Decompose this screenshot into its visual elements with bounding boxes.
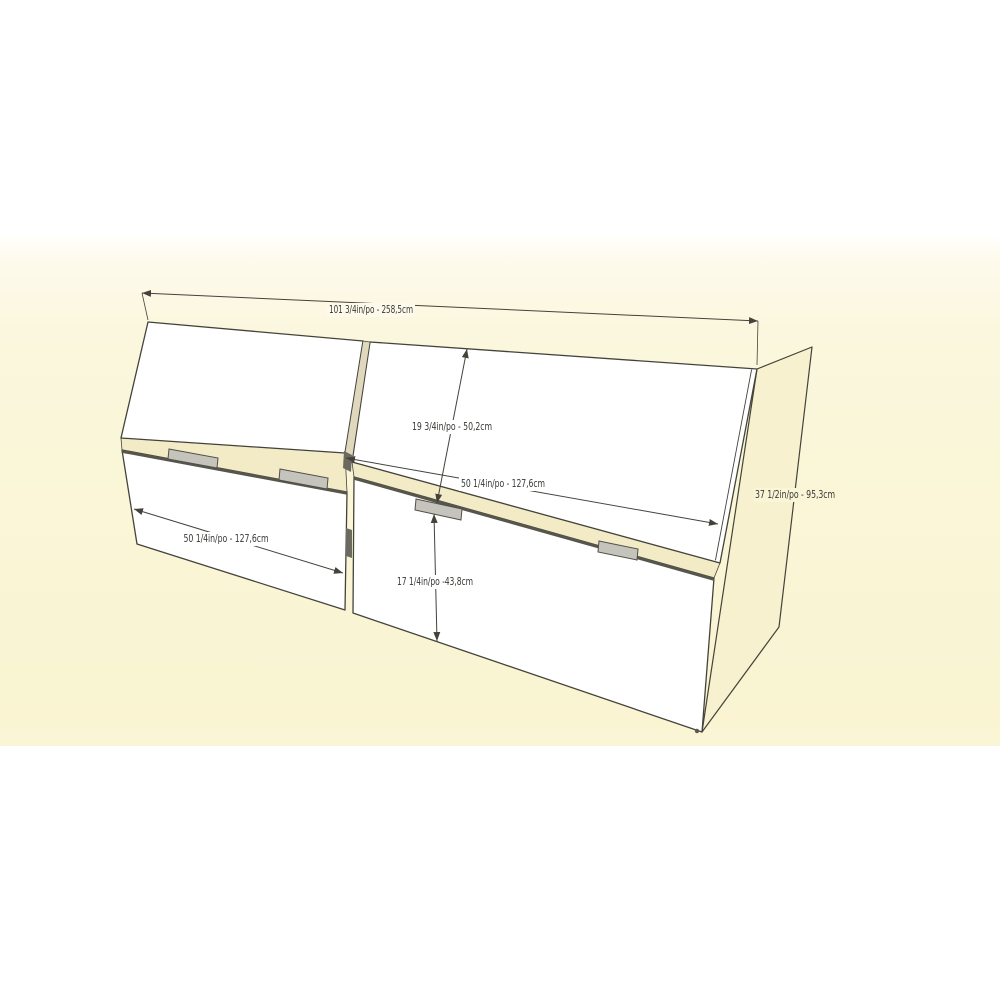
product-dimension-image: 101 3/4in/po - 258,5cm 19 3/4in/po - 50,… — [0, 0, 1000, 1000]
dimension-total-width-ext-left — [142, 293, 148, 320]
dimension-label-upper-door-width: 50 1/4in/po - 127,6cm — [461, 478, 545, 490]
dimension-label-unit-height: 37 1/2in/po - 95,3cm — [755, 489, 835, 501]
dimension-label-upper-door-height: 19 3/4in/po - 50,2cm — [412, 421, 492, 433]
dimension-label-lower-door-width: 50 1/4in/po - 127,6cm — [184, 533, 269, 545]
door-top-left — [121, 322, 363, 453]
lower-gap-hinge-block — [346, 528, 352, 558]
dimension-total-width-ext-right — [757, 321, 758, 365]
furniture-diagram: 101 3/4in/po - 258,5cm 19 3/4in/po - 50,… — [0, 0, 1000, 1000]
dimension-label-lower-door-height: 17 1/4in/po -43,8cm — [397, 576, 473, 588]
dimension-total-width-line — [142, 293, 758, 321]
dimension-label-total-width: 101 3/4in/po - 258,5cm — [329, 304, 413, 316]
cursor-dot — [695, 729, 699, 733]
